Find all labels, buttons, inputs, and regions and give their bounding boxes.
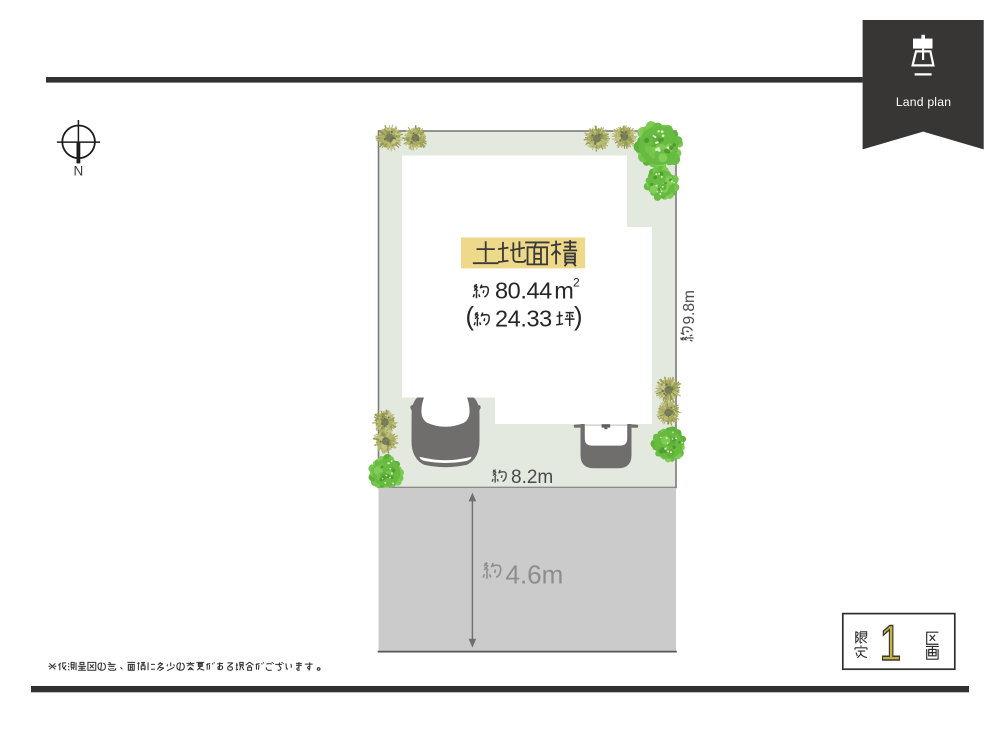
svg-text:): ) [574, 303, 583, 331]
svg-text:Land plan: Land plan [896, 95, 951, 109]
svg-text:9.8m: 9.8m [681, 290, 698, 324]
svg-text:1: 1 [880, 614, 902, 671]
svg-text:N: N [74, 164, 84, 179]
svg-text:4.6m: 4.6m [506, 560, 564, 590]
svg-text:80.44: 80.44 [495, 277, 552, 303]
svg-text:(: ( [466, 303, 475, 331]
svg-text:8.2m: 8.2m [511, 467, 553, 488]
svg-text:24.33: 24.33 [495, 305, 552, 331]
svg-text:m: m [554, 277, 574, 303]
svg-text:2: 2 [573, 276, 580, 290]
